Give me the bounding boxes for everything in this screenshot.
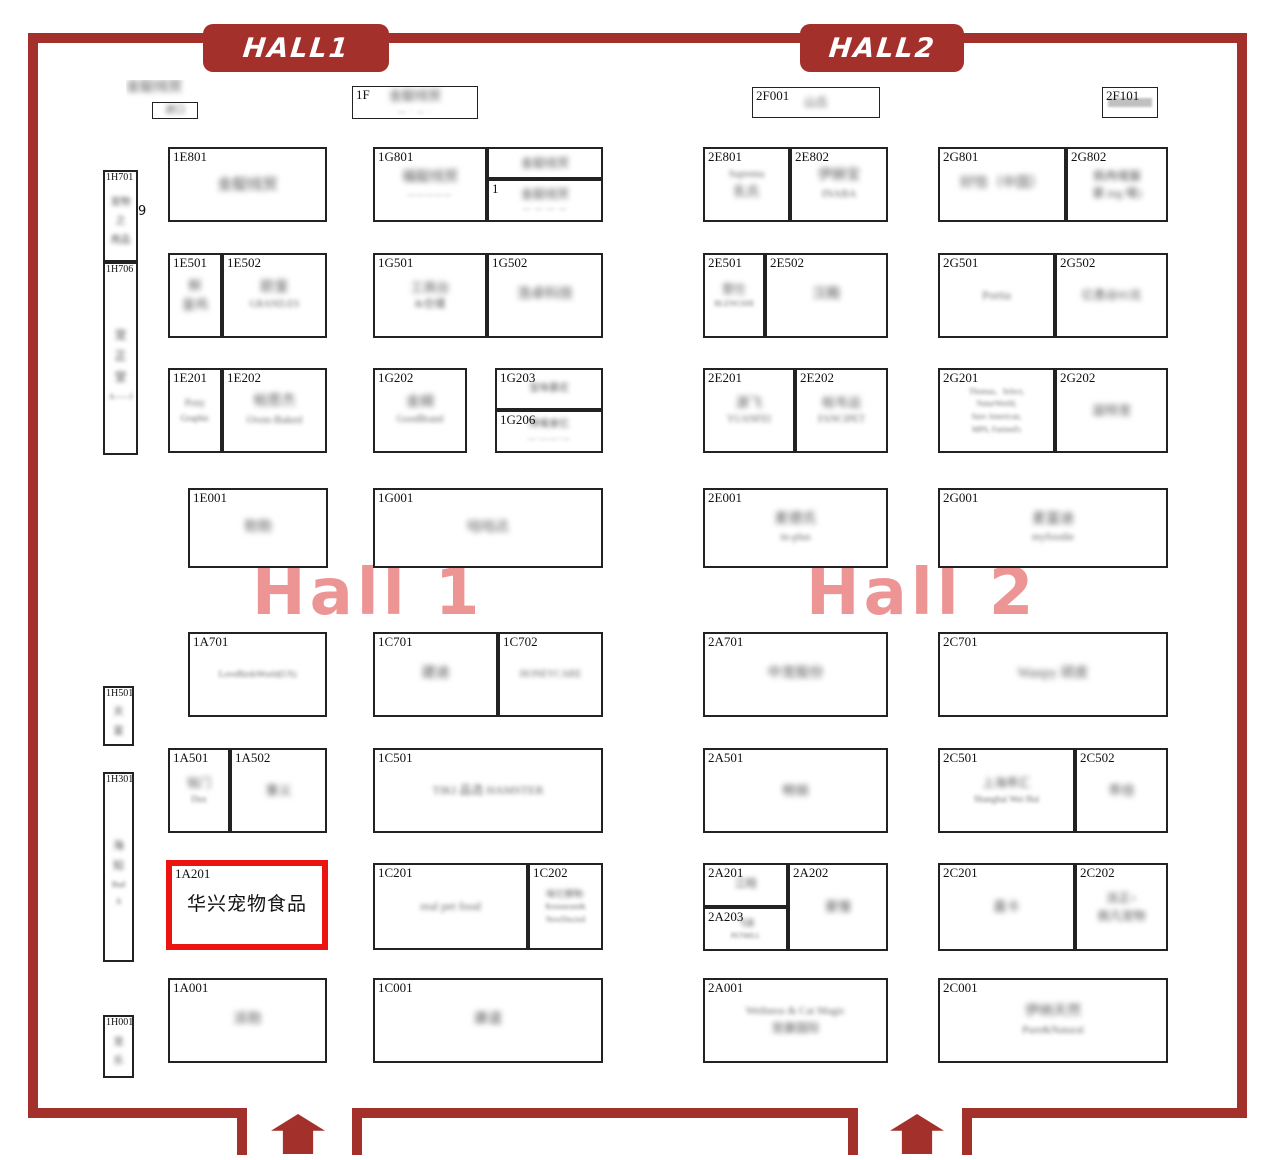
booth-2E801[interactable]: 2E801Suprema乳氏 [703,147,790,222]
booth-id: 2F101 [1106,88,1139,104]
booth-id: 1E201 [173,370,207,386]
booth-id: 2A202 [793,865,828,881]
booth-text: 天 [114,707,124,719]
booth-2E802[interactable]: 2E802伊赫宝INABA [790,147,888,222]
booth-text: 华兴宠物食品 [187,894,307,917]
booth-text: 福靛线贸 [402,170,458,187]
booth-id: 1H706 [106,264,133,275]
booth-text: 正 [114,349,126,363]
booth-text: 畅销 [782,783,808,799]
booth-text: YUANFEI [727,414,771,426]
booth-text: — · — · [398,107,432,117]
booth-text: HONEYCARE [520,669,582,681]
booth-text: 源飞 [736,395,762,411]
booth-2G201[interactable]: 2G201Thomas、Select,NaturWorld,Sure Ameri… [938,368,1055,453]
booth-text: BLENGSHI [714,299,754,309]
booth-id: 2A203 [708,909,743,925]
booth-text: 佩凡宠物 [1097,909,1145,923]
booth-2C501[interactable]: 2C501上海乖汇Shanghai Wei Hui [938,748,1075,833]
booth-2A203[interactable]: 2A203飞迷PETMILL [703,907,788,951]
booth-text: 咕咕达 [467,520,509,537]
booth-id: 1A001 [173,980,208,996]
booth-2C701[interactable]: 2C701Wanpy 顽皮 [938,632,1168,717]
booth-text: 工商台 [410,280,449,296]
booth-2G801[interactable]: 2G801好恰（中国） [938,147,1066,222]
booth-1H001[interactable]: 1H001宠乐 [103,1015,134,1078]
booth-id: 1G206 [500,412,535,428]
booth-1A001[interactable]: 1A001派勃 [168,978,327,1063]
booth-text: 乖倍 [1108,783,1134,799]
booth-text: 好恰（中国） [960,176,1044,193]
booth-id: 2C001 [943,980,978,996]
booth-1E001[interactable]: 1E001勃勃 [188,488,328,568]
booth-text: GoodBrand [397,414,444,426]
booth-id: 1G001 [378,490,413,506]
booth-text: 金靛线贸 [217,176,277,194]
booth-2F001[interactable]: 2F001山丘 [752,87,880,118]
entrance-jamb [962,1108,972,1155]
booth-text: 9 [138,204,146,220]
booth-id: 1A701 [193,634,228,650]
booth-text: PETMILL [731,932,761,940]
booth-text: 宠 [114,328,126,342]
booth-id: 1E801 [173,149,207,165]
booth-2C502[interactable]: 2C502乖倍 [1075,748,1168,833]
booth-text: Oven-Baked [247,414,303,427]
booth-text: NewDiscied [546,915,586,925]
booth-id: 2C202 [1080,865,1115,881]
booth-text: in-plus [780,531,811,544]
booth-text: 铭门 [187,776,211,790]
booth-id: 1A502 [235,750,270,766]
wall-bottom-left [28,1108,247,1118]
booth-text: 康道 [474,1012,502,1029]
booth-area: 金靛线贸 [126,80,216,102]
booth-id: 1E202 [227,370,261,386]
booth-2G502[interactable]: 2G502亿恿谷95兑 [1055,253,1168,338]
booth-text: 事义 [265,783,291,799]
booth-text: —·——·— [527,434,570,444]
booth-2A501[interactable]: 2A501畅销 [703,748,888,833]
wall-bottom-right [962,1108,1247,1118]
entrance-jamb [352,1108,362,1155]
booth-id: 1C501 [378,750,413,766]
booth-area[interactable]: 金靛线贸 [487,147,603,179]
booth-text: Wellness & Cat Magic [746,1005,846,1018]
booth-text: 之 [116,216,126,228]
booth-id: 1H501 [106,688,133,699]
booth-id: 2E801 [708,149,742,165]
booth-id: 1H301 [106,774,133,785]
booth-text: real pet food [420,899,481,913]
booth-id: 2C501 [943,750,978,766]
booth-id: 2C701 [943,634,978,650]
booth-1C701[interactable]: 1C701建迪 [373,632,498,717]
booth-id: 1F [356,87,370,103]
booth-text: LoveBirdsWorld(US) [219,669,297,680]
booth-text: 豪憧 [825,899,851,915]
booth-text: ————— [408,190,453,200]
booth-2C202[interactable]: 2C202派正+佩凡宠物 [1075,863,1168,951]
booth-1C702[interactable]: 1C702HONEYCARE [498,632,603,717]
booth-text: Pony [185,398,206,410]
booth-text: 派勃 [234,1012,262,1029]
booth-text: 山丘 [804,95,828,109]
booth-text: 海 [113,840,124,853]
booth-id: 1H001 [106,1017,133,1028]
booth-area[interactable]: 进口 [152,102,198,119]
booth-2E501[interactable]: 2E501登仕BLENGSHI [703,253,765,338]
booth-area: 9 [138,204,154,222]
booth-id: 1C001 [378,980,413,996]
entrance-jamb [848,1108,858,1155]
booth-text: 欧皇 [261,280,289,297]
booth-2G802[interactable]: 2G802佩冉唛脲豪.ing 唛) [1066,147,1168,222]
booth-1G202[interactable]: 1G202金姆GoodBrand [373,368,467,453]
booth-text: 麦德氏 [775,512,817,529]
booth-2A202[interactable]: 2A202豪憧 [788,863,888,951]
booth-text: 浩卓科技 [517,287,573,304]
booth-text: 派正+ [1106,891,1137,905]
booth-1G203[interactable]: 1G203宝味慕尼 [495,368,603,410]
booth-1G206[interactable]: 1G206馋嘴食忆—·——·— [495,410,603,453]
entrance-jamb [237,1108,247,1155]
booth-id: 2G001 [943,490,978,506]
booth-text: GRAND.ES [250,299,300,311]
booth-id: 1C202 [533,865,568,881]
booth-text: 嘉卡 [993,899,1019,915]
booth-id: 2G202 [1060,370,1095,386]
booth-text: 帕韦运 [822,395,861,411]
booth-2G501[interactable]: 2G501Portia [938,253,1055,338]
booth-text: Dux [191,794,207,805]
booth-id: 2A501 [708,750,743,766]
booth-id: 1G203 [500,370,535,386]
booth-1H701[interactable]: 1H701宠物之用品 [103,170,138,262]
booth-text: 堂 [114,370,126,384]
booth-text: 宠 [114,1037,124,1049]
booth-id: 1 [492,181,499,197]
booth-1E501[interactable]: 1E501鲜皇鸡 [168,253,222,338]
booth-id: 2G801 [943,149,978,165]
booth-id: 1H701 [106,172,133,183]
booth-text: NaturWorld, [976,399,1016,409]
booth-2C201[interactable]: 2C201嘉卡 [938,863,1075,951]
booth-text: Suprema [729,169,765,181]
booth-1F[interactable]: 1F金靛线贸— · — · [352,86,478,119]
exhibition-floorplan: HALL1 HALL2 Hall 1 Hall 2 金靛线贸进口1F金靛线贸— … [0,0,1280,1160]
booth-2E001[interactable]: 2E001麦德氏in-plus [703,488,888,568]
booth-2A001[interactable]: 2A001Wellness & Cat Magic宠康国际 [703,978,888,1063]
booth-id: 2A701 [708,634,743,650]
booth-text: 用品 [111,235,131,247]
booth-1E202[interactable]: 1E202帕思杰Oven-Baked [222,368,327,453]
booth-id: 1A201 [175,866,210,882]
booth-2C001[interactable]: 2C001伊纳天然Pure&Natural [938,978,1168,1063]
booth-text: myfoodie [1032,531,1074,544]
booth-id: 1G502 [492,255,527,271]
booth-text: Sure American, [972,412,1022,422]
entrance-arrow-icon [890,1114,944,1154]
booth-text: Bud [112,880,125,890]
booth-text: 佩冉唛脲 [1093,169,1141,183]
booth-id: 2F001 [756,88,789,104]
booth-2G202[interactable]: 2G202滋特宠 [1055,368,1168,453]
booth-1E201[interactable]: 1E201PonyGraphic [168,368,222,453]
booth-text: 皇鸡 [182,297,208,313]
booth-text: 金靛线贸 [521,156,569,170]
booth-id: 2A001 [708,980,743,996]
booth-text: 伊纳天然 [1025,1004,1081,1021]
booth-text: 乐 [114,1056,124,1068]
booth-text: 建迪 [422,666,450,683]
booth-1A701[interactable]: 1A701LoveBirdsWorld(US) [188,632,327,717]
booth-text: 知 [113,860,124,873]
booth-2A201[interactable]: 2A201江翔 [703,863,788,907]
booth-text: 登仕 [722,282,746,296]
booth-1H301[interactable]: 1H301海知BudJi [103,772,134,962]
booth-1C001[interactable]: 1C001康道 [373,978,603,1063]
wall-left [28,33,38,1118]
booth-2E201[interactable]: 2E201源飞YUANFEI [703,368,795,453]
booth-2E202[interactable]: 2E202帕韦运FANCIPET [795,368,888,453]
booth-text: Wanpy 顽皮 [1018,666,1089,683]
booth-id: 1C702 [503,634,538,650]
booth-text: 上海乖汇 [982,776,1030,790]
booth-1C201[interactable]: 1C201real pet food [373,863,528,950]
booth-text: Graphic [181,413,210,424]
booth-id: 1G202 [378,370,413,386]
booth-id: 2C502 [1080,750,1115,766]
booth-text: 乳氏 [733,184,759,200]
booth-1C501[interactable]: 1C501TIKI 品选 HAMSTER [373,748,603,833]
booth-id: 2E502 [770,255,804,271]
booth-1G001[interactable]: 1G001咕咕达 [373,488,603,568]
booth-id: 2E001 [708,490,742,506]
booth-1C202[interactable]: 1C202味它撑物:Restaurant&NewDiscied [528,863,603,950]
booth-1H706[interactable]: 1H706宠正堂A——l [103,262,138,455]
booth-id: 2E201 [708,370,742,386]
booth-text: Ji [116,897,121,907]
booth-text: 鲜 [188,278,201,294]
booth-id: 1A501 [173,750,208,766]
booth-1A201[interactable]: 1A201华兴宠物食品 [166,860,328,950]
booth-1H501[interactable]: 1H501天富 [103,686,134,746]
booth-id: 1G801 [378,149,413,165]
booth-id: 1C701 [378,634,413,650]
booth-text: 伊赫宝 [818,168,860,185]
booth-text: 味它撑物: [546,889,585,900]
booth-id: 2G502 [1060,255,1095,271]
booth-text: Restaurant& [545,902,585,912]
booth-text: 豪.ing 唛) [1092,186,1141,200]
booth-1E502[interactable]: 1E502欧皇GRAND.ES [222,253,327,338]
booth-text: 富 [114,726,124,738]
booth-text: 宠物 [111,197,131,209]
booth-1G502[interactable]: 1G502浩卓科技 [487,253,603,338]
booth-2F101[interactable]: 2F101 [1102,87,1158,118]
booth-text: 麦富迪 [1032,512,1074,529]
booth-text: 宠康国际 [771,1021,819,1035]
booth-2E502[interactable]: 2E502汉殿 [765,253,888,338]
booth-id: 1E001 [193,490,227,506]
booth-text: MPS, Farmed's [972,425,1021,435]
booth-id: 2E802 [795,149,829,165]
booth-id: 2G501 [943,255,978,271]
hall2-banner-label: HALL2 [827,33,937,64]
booth-1G501[interactable]: 1G501工商台&仓储 [373,253,487,338]
booth-id: 1E501 [173,255,207,271]
booth-2A701[interactable]: 2A701中宠股份 [703,632,888,717]
booth-text: &仓储 [415,298,446,311]
booth-text: 帕思杰 [254,394,296,411]
hall2-banner: HALL2 [800,24,964,72]
booth-1A502[interactable]: 1A502事义 [230,748,327,833]
entrance-arrow-icon [271,1114,325,1154]
booth-id: 2E202 [800,370,834,386]
booth-1A501[interactable]: 1A501铭门Dux [168,748,230,833]
wall-bottom-middle [352,1108,858,1118]
booth-text: 汉殿 [813,287,841,304]
booth-text: 金靛线贸 [521,187,569,201]
booth-text: — — — — [523,204,568,214]
hall1-banner: HALL1 [203,24,389,72]
hall1-banner-label: HALL1 [241,33,351,64]
booth-id: 2G802 [1071,149,1106,165]
booth-2G001[interactable]: 2G001麦富迪myfoodie [938,488,1168,568]
booth-text: 中宠股份 [768,666,824,683]
booth-1E801[interactable]: 1E801金靛线贸 [168,147,327,222]
booth-id: 1E502 [227,255,261,271]
booth-id: 2G201 [943,370,978,386]
booth-text: 滋特宠 [1092,403,1131,419]
booth-text: 金姆 [406,395,434,412]
booth-text: Thomas、Select, [969,387,1024,397]
booth-text: 亿恿谷95兑 [1081,288,1141,302]
wall-right [1237,33,1247,1118]
booth-id: 1G501 [378,255,413,271]
booth-text: 勃勃 [244,520,272,537]
booth-id: 2A201 [708,865,743,881]
booth-id: 1C201 [378,865,413,881]
booth-text: 金靛线贸 [389,88,441,104]
booth-text: A——l [109,392,133,402]
booth-id: 2C201 [943,865,978,881]
booth-text: Portia [982,288,1011,302]
booth-text: Shanghai Wei Hui [974,794,1040,805]
booth-text: Pure&Natural [1022,1024,1084,1037]
booth-text: 金靛线贸 [126,80,182,97]
booth-text: TIKI 品选 HAMSTER [432,783,543,797]
booth-text: INABA [822,188,857,201]
booth-text: 进口 [165,105,185,117]
booth-text: FANCIPET [818,414,865,426]
booth-id: 2E501 [708,255,742,271]
booth-1[interactable]: 1金靛线贸— — — — [487,179,603,222]
booth-1G801[interactable]: 1G801福靛线贸————— [373,147,487,222]
